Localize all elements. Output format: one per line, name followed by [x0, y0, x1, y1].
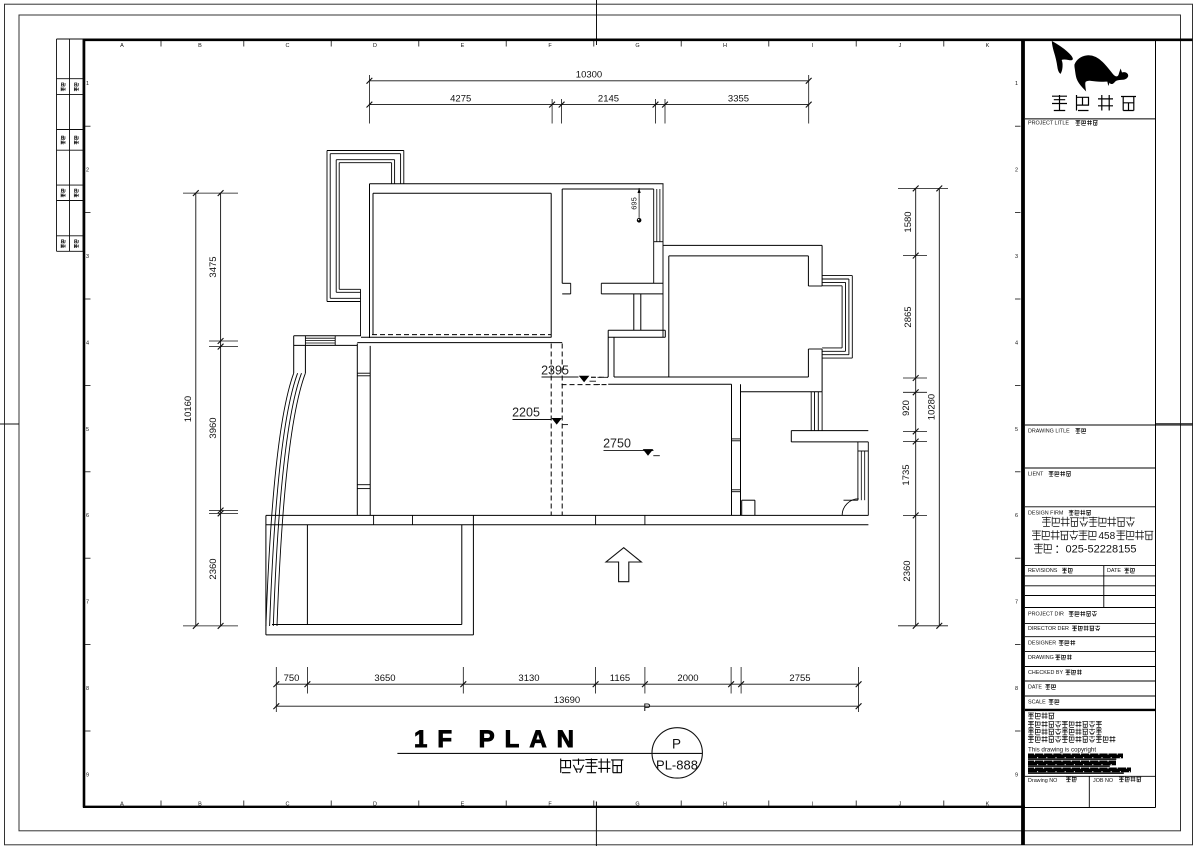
- svg-text:DESIGNER: DESIGNER: [1028, 641, 1056, 647]
- svg-text:10160: 10160: [183, 396, 194, 422]
- svg-text:H: H: [723, 801, 727, 807]
- svg-text:G: G: [635, 43, 639, 49]
- svg-text:750: 750: [284, 673, 300, 684]
- svg-text:7: 7: [86, 600, 89, 606]
- svg-text:B: B: [198, 43, 202, 49]
- svg-text:B: B: [198, 801, 202, 807]
- svg-text:1580: 1580: [903, 211, 914, 232]
- svg-text:13690: 13690: [554, 695, 580, 706]
- svg-text:CHECKED BY: CHECKED BY: [1028, 670, 1063, 676]
- svg-text:2360: 2360: [208, 558, 219, 579]
- svg-text:7: 7: [1015, 600, 1018, 606]
- svg-text:D: D: [373, 801, 377, 807]
- svg-text:1: 1: [1015, 81, 1018, 87]
- svg-text:3130: 3130: [518, 673, 539, 684]
- svg-text:DRAWING LITLE: DRAWING LITLE: [1028, 429, 1070, 435]
- svg-text:10280: 10280: [927, 394, 938, 420]
- svg-text:2205: 2205: [512, 406, 540, 420]
- svg-text:This drawing is copyright: This drawing is copyright: [1028, 747, 1096, 754]
- svg-text:6: 6: [86, 513, 89, 519]
- svg-text:3650: 3650: [374, 673, 395, 684]
- svg-text:DATE: DATE: [1107, 568, 1121, 574]
- svg-text:C: C: [286, 801, 290, 807]
- svg-text:K: K: [986, 801, 990, 807]
- svg-text:J: J: [899, 801, 902, 807]
- svg-text:3475: 3475: [208, 256, 219, 277]
- svg-text:3355: 3355: [728, 94, 749, 105]
- svg-text:DATE: DATE: [1028, 685, 1042, 691]
- svg-text:K: K: [986, 43, 990, 49]
- svg-text:2145: 2145: [598, 94, 619, 105]
- svg-text:DESIGN FIRM: DESIGN FIRM: [1028, 510, 1064, 516]
- svg-text:5: 5: [86, 427, 89, 433]
- svg-text:1: 1: [86, 81, 89, 87]
- svg-text:P: P: [672, 737, 681, 752]
- svg-text:G: G: [635, 801, 639, 807]
- svg-text:DIRECTOR DER: DIRECTOR DER: [1028, 626, 1069, 632]
- svg-text:3960: 3960: [208, 417, 219, 438]
- svg-text:A: A: [120, 43, 124, 49]
- svg-text:8: 8: [1015, 686, 1018, 692]
- svg-text:3: 3: [1015, 254, 1018, 260]
- svg-text:2750: 2750: [603, 437, 631, 451]
- svg-text:PL-888: PL-888: [656, 758, 698, 773]
- svg-text:9: 9: [86, 772, 89, 778]
- svg-text:9: 9: [1015, 772, 1018, 778]
- svg-text:10300: 10300: [576, 70, 602, 81]
- svg-text:8: 8: [86, 686, 89, 692]
- svg-text:1165: 1165: [610, 673, 630, 684]
- svg-text:PROJECT DIR: PROJECT DIR: [1028, 612, 1064, 618]
- svg-text:REVISIONS: REVISIONS: [1028, 568, 1058, 574]
- svg-text:2395: 2395: [541, 364, 569, 378]
- svg-text:3: 3: [86, 254, 89, 260]
- svg-text:2: 2: [86, 168, 89, 174]
- svg-text:458: 458: [1099, 531, 1116, 542]
- svg-text:920: 920: [901, 400, 912, 416]
- svg-text:2360: 2360: [902, 560, 913, 581]
- svg-text:2: 2: [1015, 168, 1018, 174]
- svg-text:1F PLAN: 1F PLAN: [414, 726, 584, 753]
- svg-text:5: 5: [1015, 427, 1018, 433]
- svg-text:J: J: [899, 43, 902, 49]
- svg-text:2000: 2000: [677, 673, 698, 684]
- svg-text:4: 4: [86, 340, 89, 346]
- svg-text:1735: 1735: [901, 464, 912, 485]
- svg-text:P: P: [643, 702, 650, 714]
- svg-text:2755: 2755: [789, 673, 810, 684]
- svg-text:6: 6: [1015, 513, 1018, 519]
- svg-text:PROJECT LITLE: PROJECT LITLE: [1028, 121, 1069, 127]
- svg-text:SCALE: SCALE: [1028, 700, 1046, 706]
- svg-text:DRAWING: DRAWING: [1028, 655, 1054, 661]
- svg-text:Drawing NO: Drawing NO: [1028, 778, 1057, 784]
- svg-text:E: E: [461, 43, 465, 49]
- svg-text:695: 695: [630, 197, 639, 210]
- svg-text:JOB NO: JOB NO: [1093, 778, 1113, 784]
- svg-text:：025-52228155: ：025-52228155: [1055, 543, 1137, 555]
- svg-text:LIENT: LIENT: [1028, 472, 1044, 478]
- svg-text:4275: 4275: [450, 94, 471, 105]
- svg-text:E: E: [461, 801, 465, 807]
- svg-text:2865: 2865: [903, 306, 914, 327]
- svg-text:4: 4: [1015, 340, 1018, 346]
- svg-text:A: A: [120, 801, 124, 807]
- svg-text:D: D: [373, 43, 377, 49]
- svg-text:C: C: [286, 43, 290, 49]
- svg-text:H: H: [723, 43, 727, 49]
